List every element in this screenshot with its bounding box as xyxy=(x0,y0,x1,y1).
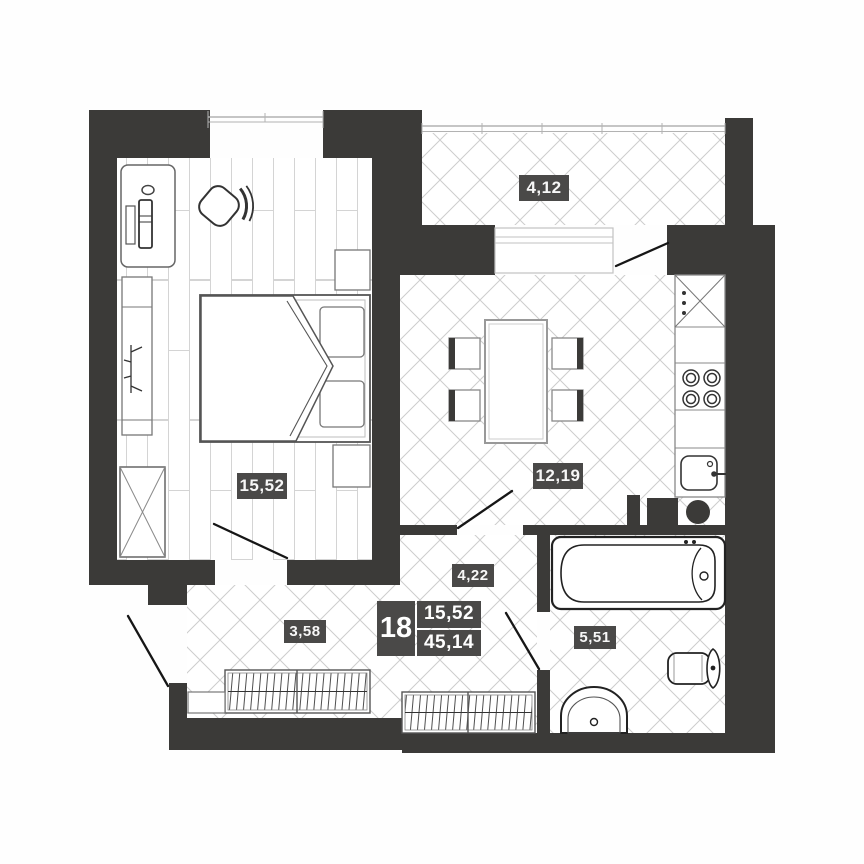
wall-bathroom-left-bottom xyxy=(537,670,550,735)
wall-balcony-kitchen-right xyxy=(667,225,725,275)
hall-wardrobe xyxy=(225,670,370,713)
kitchen-area-label: 12,19 xyxy=(533,463,583,489)
bed xyxy=(200,295,370,442)
keyboard xyxy=(126,206,135,244)
chair xyxy=(552,390,583,421)
pillow xyxy=(320,307,364,357)
hallway-area-label: 3,58 xyxy=(284,620,326,643)
bathroom-area-label: 5,51 xyxy=(574,626,616,649)
bathtub xyxy=(552,537,725,609)
balcony-door-swing xyxy=(616,243,668,266)
floor-plan: 4,12 15,52 12,19 4,22 3,58 5,51 18 15,52… xyxy=(0,0,864,864)
hall-shelf xyxy=(188,692,225,713)
balcony-glazing xyxy=(422,123,725,134)
pillow xyxy=(320,381,364,427)
water-heater xyxy=(686,500,710,524)
wall-bottom xyxy=(402,733,775,753)
wall-entry-jamb xyxy=(148,585,187,605)
desk xyxy=(121,165,175,267)
nightstand-bottom xyxy=(333,445,370,487)
wall-left xyxy=(89,110,117,563)
balcony-door-window-unit xyxy=(495,228,613,273)
apartment-number: 18 xyxy=(377,601,415,656)
wall-washer-stub xyxy=(627,495,640,535)
balcony-floor xyxy=(422,133,725,225)
dining-table xyxy=(485,320,547,443)
mouse xyxy=(142,186,154,195)
floor-plan-drawing xyxy=(0,0,864,864)
chair xyxy=(449,338,480,369)
living-area-value: 15,52 xyxy=(417,601,481,628)
washing-machine xyxy=(647,498,678,525)
chair xyxy=(552,338,583,369)
wall-balcony-left xyxy=(400,110,422,225)
entry-door-swing xyxy=(128,616,168,686)
wall-balcony-kitchen-left xyxy=(400,225,495,275)
apartment-info-badge: 18 15,52 45,14 xyxy=(377,601,481,656)
wall-balcony-right xyxy=(725,118,753,225)
computer xyxy=(139,200,152,248)
nightstand-top xyxy=(335,250,370,290)
toilet xyxy=(668,649,720,688)
wardrobe xyxy=(120,467,165,557)
total-area-value: 45,14 xyxy=(417,630,481,657)
wall-bathroom-top xyxy=(523,525,727,535)
wall-hall-bottom xyxy=(169,718,402,750)
wall-right xyxy=(725,225,775,753)
chair xyxy=(449,390,480,421)
wall-bedroom-bottom-left xyxy=(89,560,215,585)
wall-kitchen-corridor xyxy=(400,525,457,535)
balcony-area-label: 4,12 xyxy=(519,175,569,201)
wall-bedroom-kitchen xyxy=(372,158,400,585)
bedroom-area-label: 15,52 xyxy=(237,473,287,499)
bedroom-window xyxy=(208,111,323,128)
corridor-area-label: 4,22 xyxy=(452,564,494,587)
wall-bathroom-left-top xyxy=(537,535,550,612)
kitchen-counter xyxy=(675,275,726,497)
tv-stand xyxy=(122,277,152,435)
corridor-wardrobe xyxy=(402,692,535,733)
